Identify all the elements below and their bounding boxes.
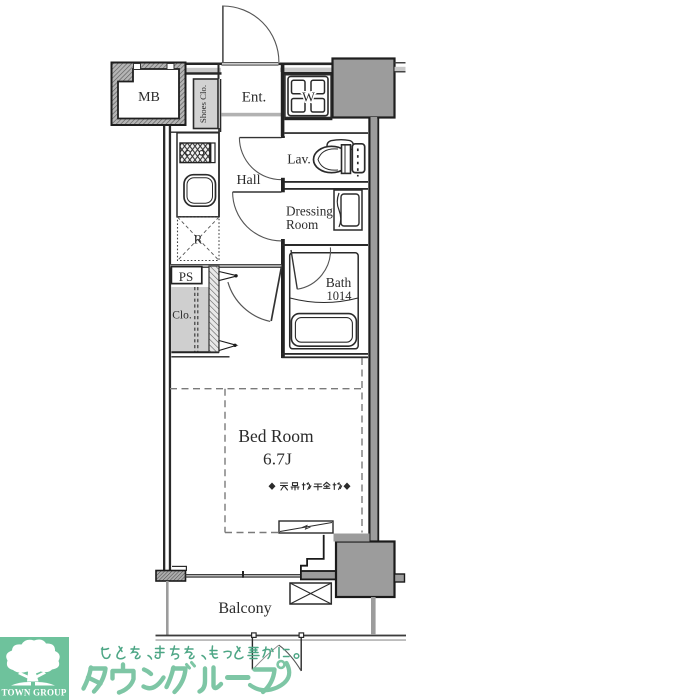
svg-text:R: R [194, 232, 203, 247]
svg-text:W: W [302, 90, 315, 105]
svg-text:6.7J: 6.7J [263, 450, 292, 469]
svg-text:Clo.: Clo. [172, 310, 192, 322]
svg-text:Ent.: Ent. [242, 90, 267, 106]
svg-text:Shoes Clo.: Shoes Clo. [198, 85, 208, 123]
svg-text:Balcony: Balcony [218, 600, 271, 617]
svg-text:1014: 1014 [327, 289, 353, 303]
svg-text:Room: Room [286, 217, 319, 232]
svg-text:Bath: Bath [326, 275, 352, 290]
svg-text:PS: PS [179, 269, 193, 284]
svg-text:TOWN GROUP: TOWN GROUP [1, 688, 66, 698]
svg-text:Hall: Hall [236, 173, 260, 188]
svg-text:MB: MB [138, 90, 160, 105]
svg-text:Lav.: Lav. [287, 152, 311, 167]
svg-text:Bed Room: Bed Room [238, 426, 314, 446]
